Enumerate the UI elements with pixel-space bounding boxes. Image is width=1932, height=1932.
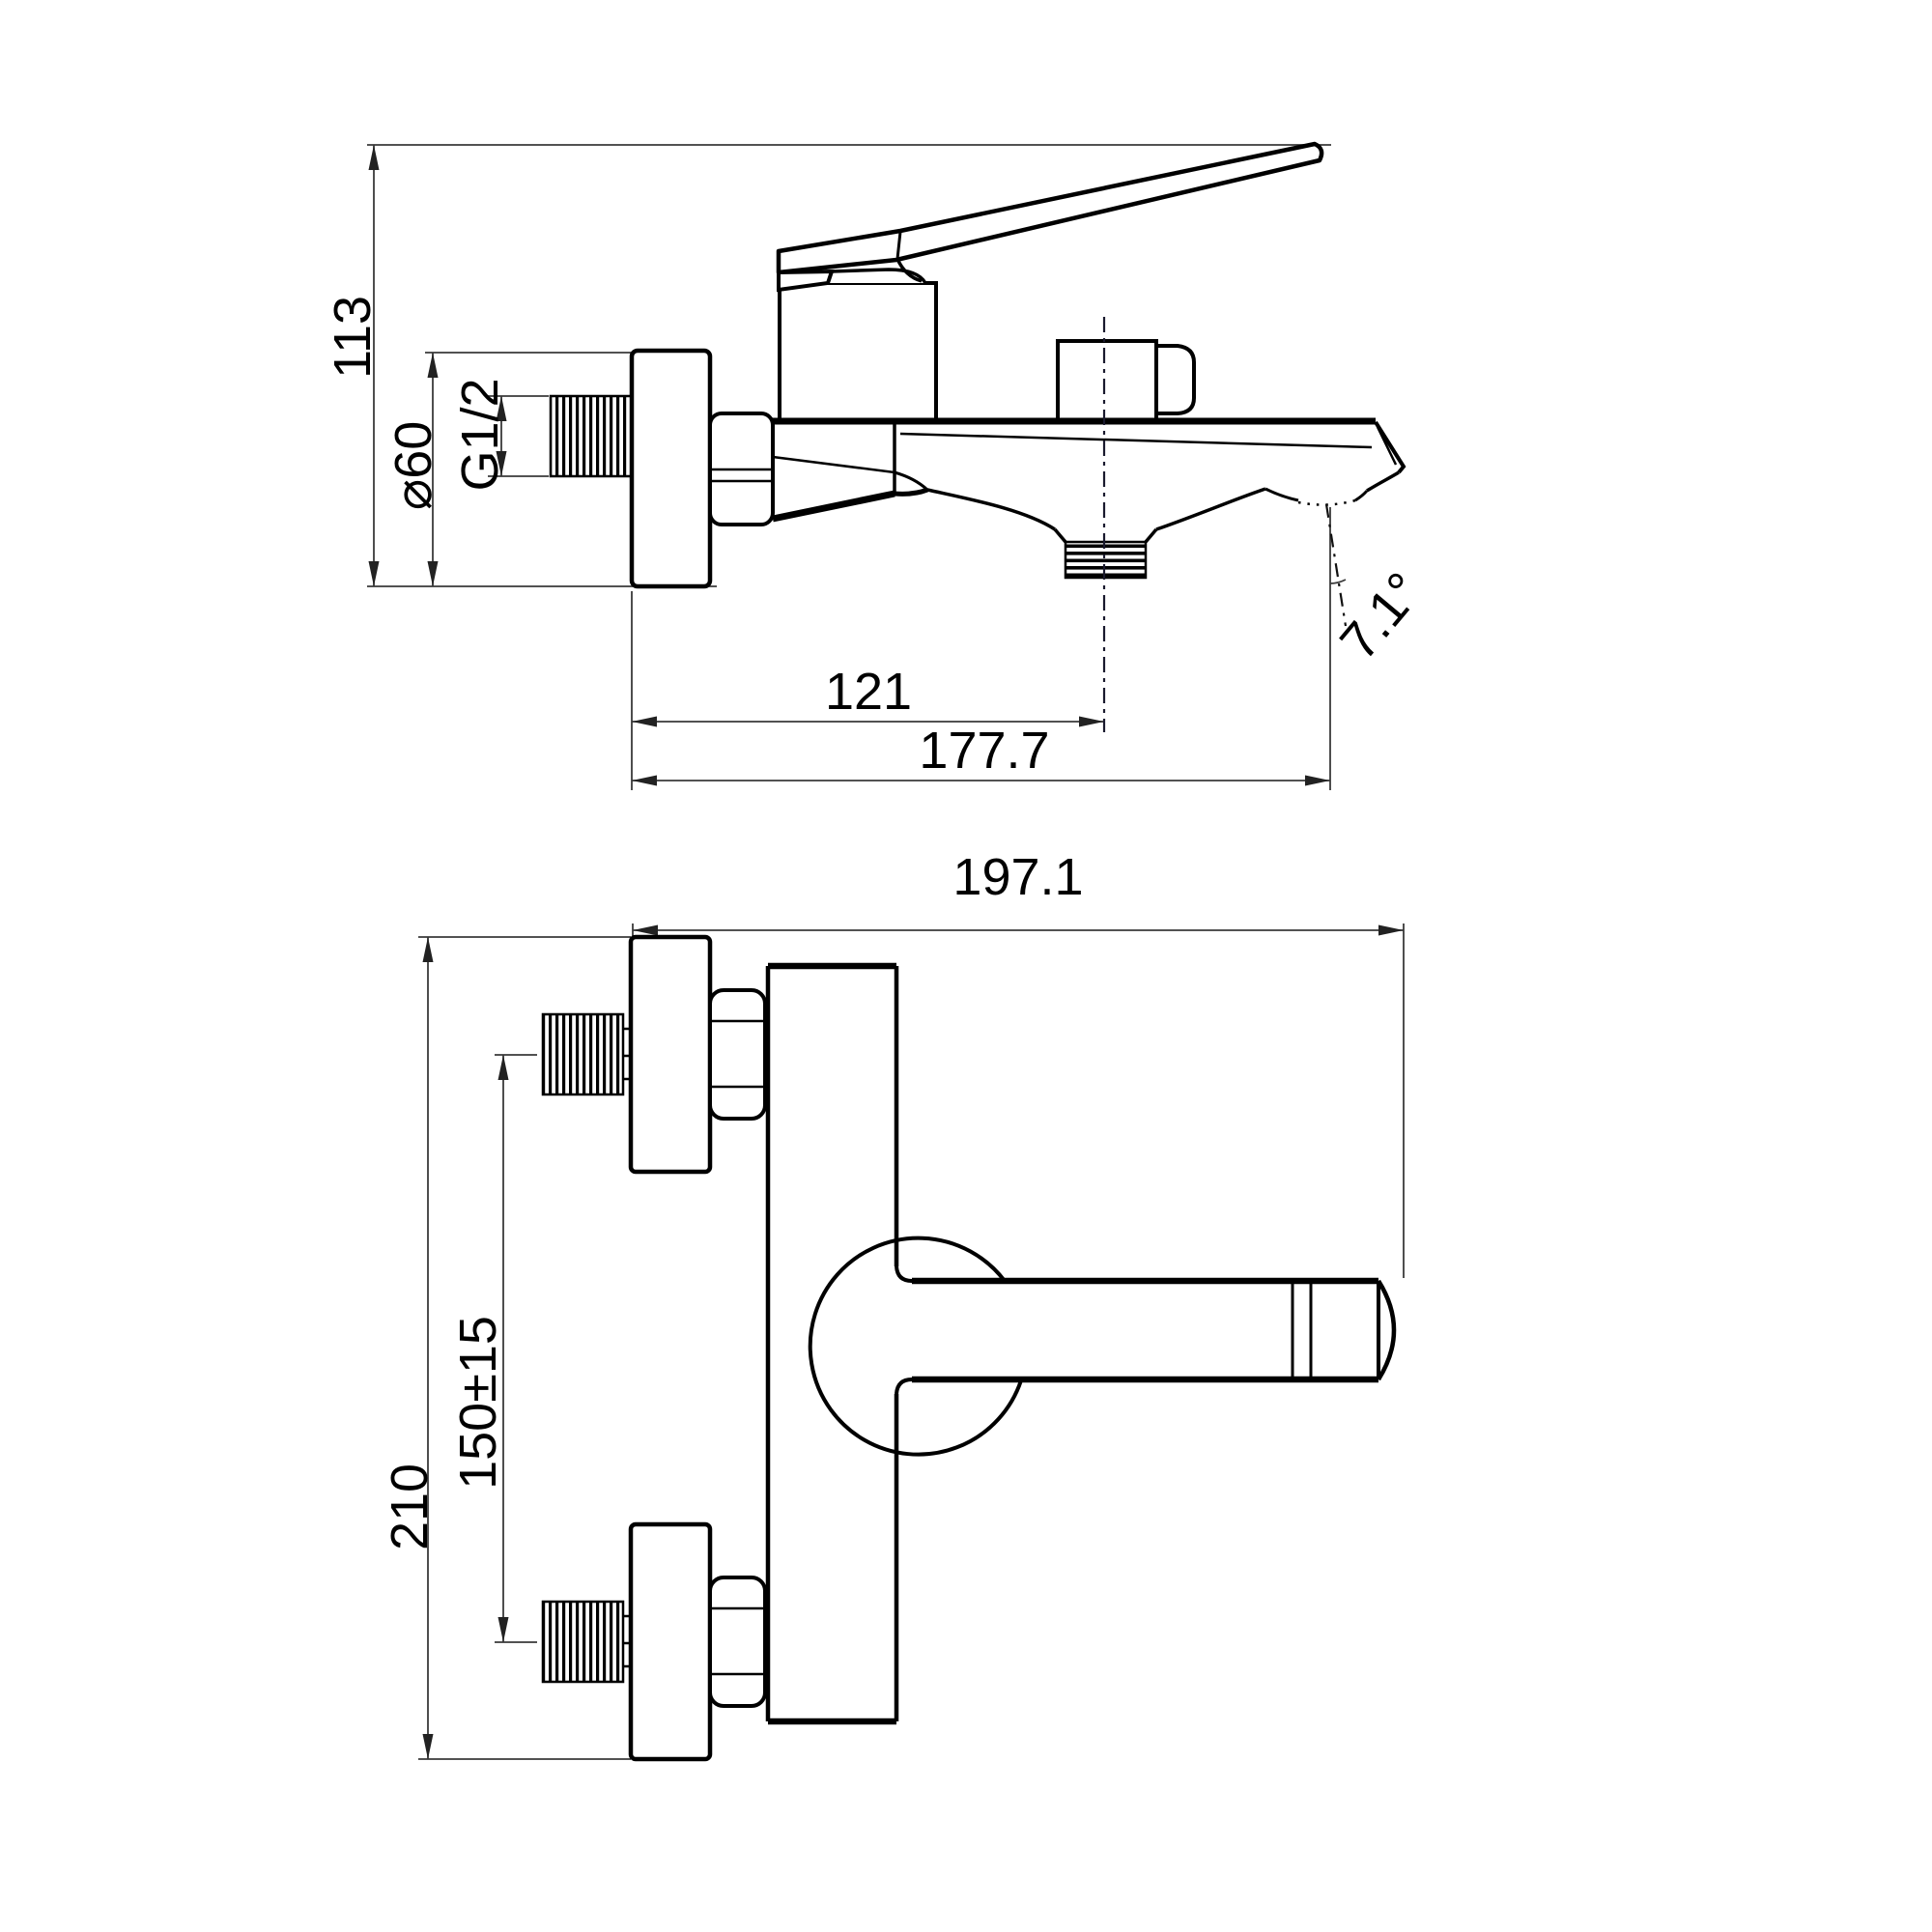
shower-outlet-thread bbox=[1065, 542, 1146, 578]
dim-inlet-thread-label: G1/2 bbox=[451, 378, 509, 491]
body-bar-plan bbox=[768, 966, 896, 1721]
wall-plate-upper bbox=[631, 937, 710, 1172]
inlet-thread-side bbox=[551, 396, 632, 476]
mixer-body-side bbox=[780, 283, 936, 421]
diverter-knob-side bbox=[1058, 341, 1194, 422]
inlet-thread-upper bbox=[543, 1014, 623, 1094]
dim-shower-outlet-offset-label: 121 bbox=[825, 663, 912, 721]
dim-escutcheon-diameter-label: ⌀60 bbox=[384, 421, 442, 511]
dim-overall-reach-label: 197.1 bbox=[952, 848, 1083, 906]
dim-plan-overall-height-label: 210 bbox=[381, 1463, 439, 1550]
dim-spout-reach-label: 177.7 bbox=[919, 722, 1049, 780]
wall-plate-lower bbox=[631, 1524, 710, 1759]
hex-nut-upper bbox=[710, 990, 765, 1119]
technical-drawing-page: 113 ⌀60 G1/2 121 177.7 7.1° bbox=[0, 0, 1932, 1932]
hex-nut-lower bbox=[710, 1577, 765, 1706]
hex-nut-side bbox=[710, 413, 773, 525]
dim-inlet-spacing-label: 150±15 bbox=[449, 1316, 507, 1490]
inlet-thread-lower bbox=[543, 1602, 623, 1682]
faucet-technical-drawing: 113 ⌀60 G1/2 121 177.7 7.1° bbox=[0, 0, 1932, 1932]
drawing-background bbox=[0, 0, 1932, 1932]
dim-overall-height-label: 113 bbox=[324, 296, 382, 379]
wall-plate-side bbox=[632, 351, 710, 586]
